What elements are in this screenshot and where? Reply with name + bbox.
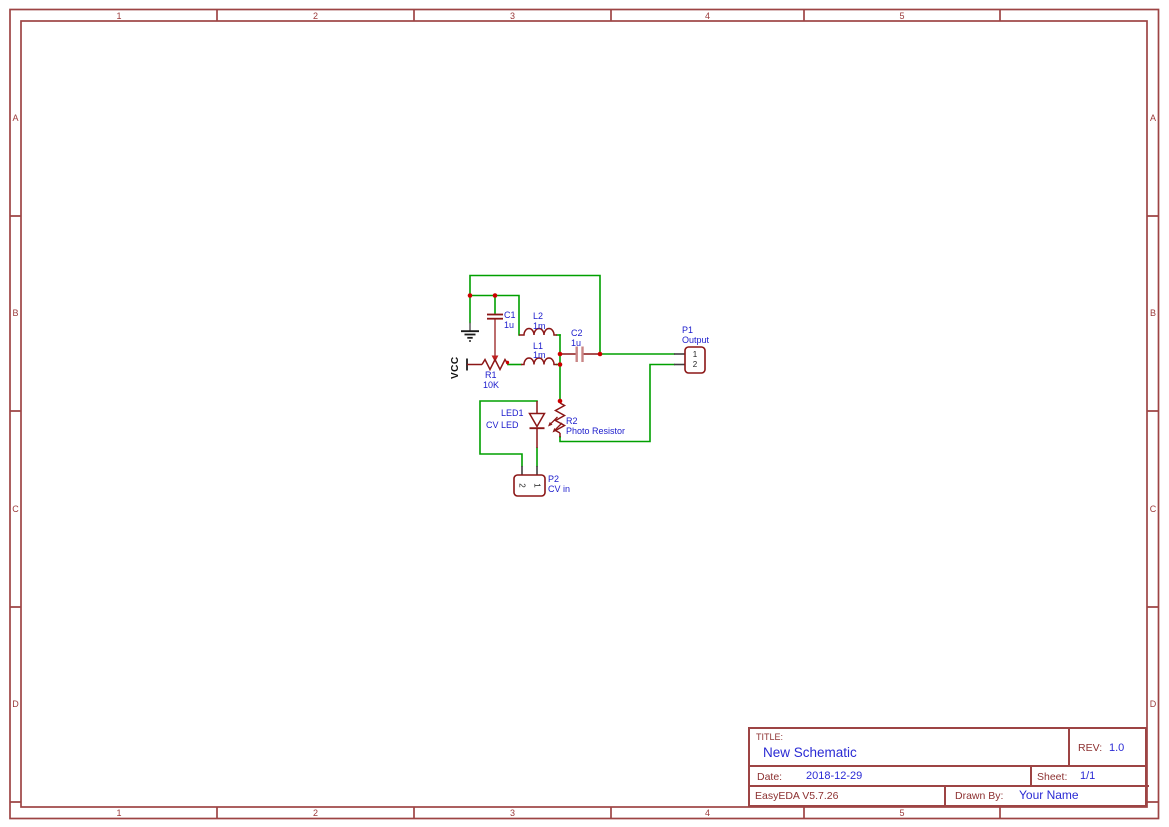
sheet-label: Sheet: (1037, 771, 1067, 783)
photoresistor-r2[interactable] (548, 401, 565, 437)
c2-value-label[interactable]: 1u (571, 339, 581, 348)
ground-symbol[interactable] (461, 323, 479, 342)
resistor-r1[interactable] (467, 360, 508, 370)
frame-col-label-bottom-5: 5 (887, 808, 917, 818)
frame-column-ticks (217, 10, 1000, 819)
c1-value-label[interactable]: 1u (504, 321, 514, 330)
frame-inner-border (21, 21, 1147, 807)
rev-label: REV: (1078, 742, 1102, 754)
frame-col-label-bottom-2: 2 (301, 808, 331, 818)
l2-ref-label[interactable]: L2 (533, 312, 543, 321)
frame-row-ticks (10, 216, 1159, 802)
schematic-sheet: 1 2 3 4 5 1 2 3 4 5 A B C D A B C D VCC … (0, 0, 1169, 827)
frame-row-label-left-a: A (10, 113, 21, 123)
date-value[interactable]: 2018-12-29 (806, 770, 862, 782)
c2-ref-label[interactable]: C2 (571, 329, 583, 338)
rev-value[interactable]: 1.0 (1109, 742, 1124, 754)
title-block: TITLE: New Schematic REV: 1.0 Date: 2018… (748, 727, 1147, 807)
frame-col-label-top-5: 5 (887, 11, 917, 21)
p1-pin1-number: 1 (690, 350, 700, 359)
c1-ref-label[interactable]: C1 (504, 311, 516, 320)
p2-pin2-number: 2 (518, 481, 527, 491)
frame-col-label-bottom-1: 1 (104, 808, 134, 818)
frame-row-label-right-b: B (1148, 308, 1159, 318)
p2-ref-label[interactable]: P2 (548, 475, 559, 484)
drawn-by-value[interactable]: Your Name (1019, 789, 1079, 801)
frame-outer-border (10, 10, 1159, 819)
led1-value-label[interactable]: CV LED (486, 421, 519, 430)
sheet-value[interactable]: 1/1 (1080, 770, 1095, 782)
software-cell: EasyEDA V5.7.26 (750, 787, 946, 805)
drawn-by-label: Drawn By: (955, 790, 1003, 802)
frame-row-label-left-d: D (10, 699, 21, 709)
r1-ref-label[interactable]: R1 (485, 371, 497, 380)
frame-row-label-right-d: D (1148, 699, 1159, 709)
title-cell: TITLE: New Schematic (750, 729, 1070, 767)
sheet-drawing (0, 0, 1169, 827)
vcc-net-label[interactable]: VCC (451, 356, 461, 379)
r2-ref-label[interactable]: R2 (566, 417, 578, 426)
p1-ref-label[interactable]: P1 (682, 326, 693, 335)
l1-value-label[interactable]: 1m (533, 351, 546, 360)
led1-ref-label[interactable]: LED1 (501, 409, 524, 418)
r1-value-label[interactable]: 10K (483, 381, 499, 390)
frame-col-label-top-1: 1 (104, 11, 134, 21)
frame-row-label-right-c: C (1148, 504, 1159, 514)
frame-col-label-bottom-3: 3 (498, 808, 528, 818)
frame-row-label-left-c: C (10, 504, 21, 514)
frame-col-label-top-3: 3 (498, 11, 528, 21)
p1-pin2-number: 2 (690, 360, 700, 369)
title-label: TITLE: (756, 732, 783, 742)
frame-col-label-bottom-4: 4 (693, 808, 723, 818)
light-arrows (548, 417, 562, 433)
date-label: Date: (757, 771, 782, 783)
frame-row-label-left-b: B (10, 308, 21, 318)
software-version: EasyEDA V5.7.26 (755, 790, 838, 802)
rev-cell: REV: 1.0 (1070, 729, 1145, 767)
p1-value-label[interactable]: Output (682, 336, 709, 345)
drawn-by-cell: Drawn By: Your Name (946, 787, 1149, 805)
frame-col-label-top-2: 2 (301, 11, 331, 21)
wires[interactable] (470, 276, 674, 467)
frame-col-label-top-4: 4 (693, 11, 723, 21)
led1-symbol[interactable] (530, 401, 545, 448)
date-cell: Date: 2018-12-29 (750, 767, 1032, 787)
l2-value-label[interactable]: 1m (533, 322, 546, 331)
sheet-frame (10, 10, 1159, 819)
capacitor-c1[interactable] (487, 315, 503, 363)
capacitor-c2[interactable] (560, 347, 600, 363)
title-value[interactable]: New Schematic (763, 745, 857, 760)
frame-row-label-right-a: A (1148, 113, 1159, 123)
r2-value-label[interactable]: Photo Resistor (566, 427, 625, 436)
p2-pin1-number: 1 (533, 481, 542, 491)
sheet-cell: Sheet: 1/1 (1032, 767, 1149, 787)
p2-value-label[interactable]: CV in (548, 485, 570, 494)
